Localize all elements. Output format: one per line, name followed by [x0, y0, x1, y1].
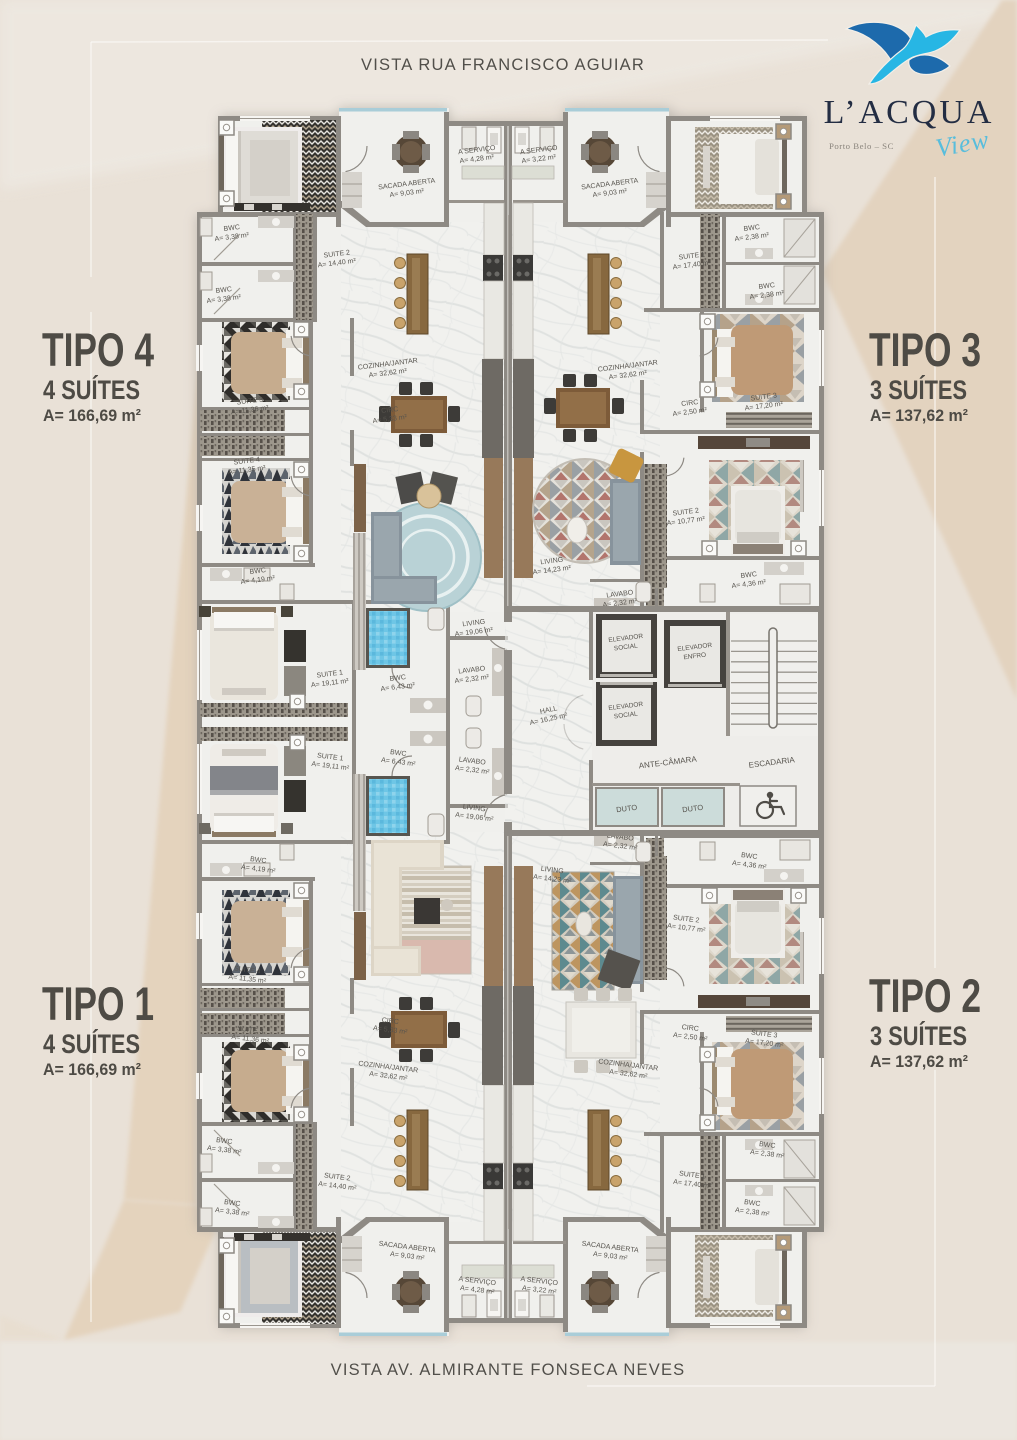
svg-text:TIPO 3: TIPO 3 [869, 323, 981, 376]
svg-text:A= 137,62 m²: A= 137,62 m² [870, 1053, 968, 1071]
svg-text:4 SUÍTES: 4 SUÍTES [43, 1028, 140, 1059]
svg-text:A= 137,62 m²: A= 137,62 m² [870, 407, 968, 425]
svg-text:3 SUÍTES: 3 SUÍTES [870, 374, 967, 405]
svg-text:VISTA RUA FRANCISCO AGUIAR: VISTA RUA FRANCISCO AGUIAR [361, 56, 645, 74]
svg-text:A= 166,69 m²: A= 166,69 m² [43, 407, 141, 425]
svg-text:TIPO 2: TIPO 2 [869, 969, 981, 1022]
svg-text:TIPO 4: TIPO 4 [42, 323, 154, 376]
svg-text:3 SUÍTES: 3 SUÍTES [870, 1020, 967, 1051]
svg-text:Porto Belo – SC: Porto Belo – SC [829, 141, 894, 151]
svg-text:TIPO 1: TIPO 1 [42, 977, 154, 1030]
svg-text:L’ACQUA: L’ACQUA [824, 94, 995, 131]
svg-text:A= 166,69 m²: A= 166,69 m² [43, 1061, 141, 1079]
svg-text:VISTA AV. ALMIRANTE FONSECA NE: VISTA AV. ALMIRANTE FONSECA NEVES [331, 1361, 686, 1379]
svg-text:4 SUÍTES: 4 SUÍTES [43, 374, 140, 405]
